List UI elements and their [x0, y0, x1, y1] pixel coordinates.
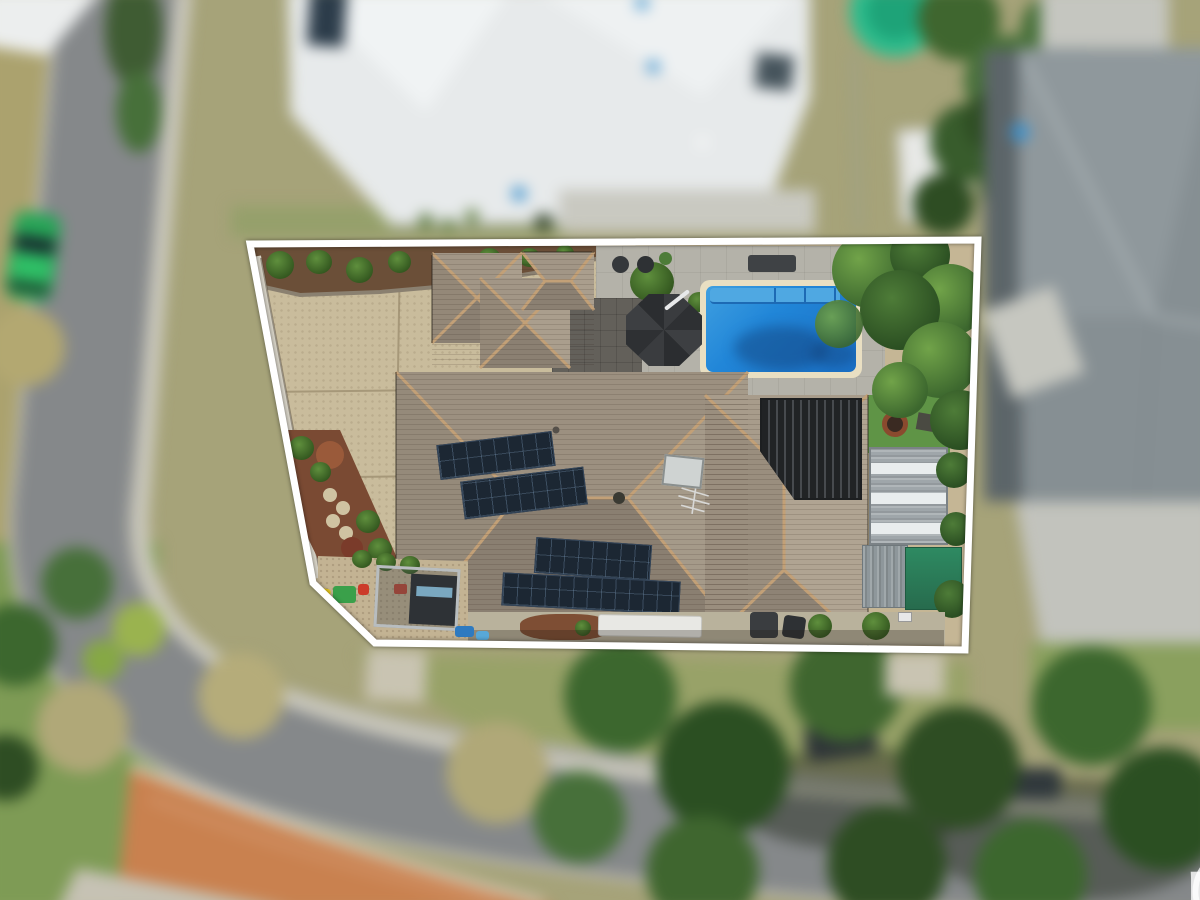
trampoline-mat	[409, 574, 458, 626]
blue-toy	[455, 626, 474, 637]
metal-shed	[869, 447, 948, 545]
tree	[936, 452, 972, 488]
shed-skylight-strip	[871, 463, 946, 474]
basketball-hoop	[898, 612, 912, 622]
tree	[940, 512, 972, 546]
roof-skylight	[661, 454, 704, 489]
carport-roof	[862, 545, 908, 608]
hedge	[352, 550, 372, 568]
trampoline-frame	[373, 565, 460, 631]
blue-toy	[476, 631, 489, 640]
shade-tarp-blue	[416, 586, 452, 598]
play-cubby-green	[333, 586, 356, 603]
watermark-brand-text: realty	[1186, 850, 1200, 900]
play-item-red	[358, 584, 369, 595]
tree	[815, 300, 863, 348]
aerial-photo: @realty	[0, 0, 1200, 900]
shed-skylight-strip	[871, 523, 946, 534]
tree	[872, 362, 928, 418]
shed-skylight-strip	[871, 493, 946, 504]
